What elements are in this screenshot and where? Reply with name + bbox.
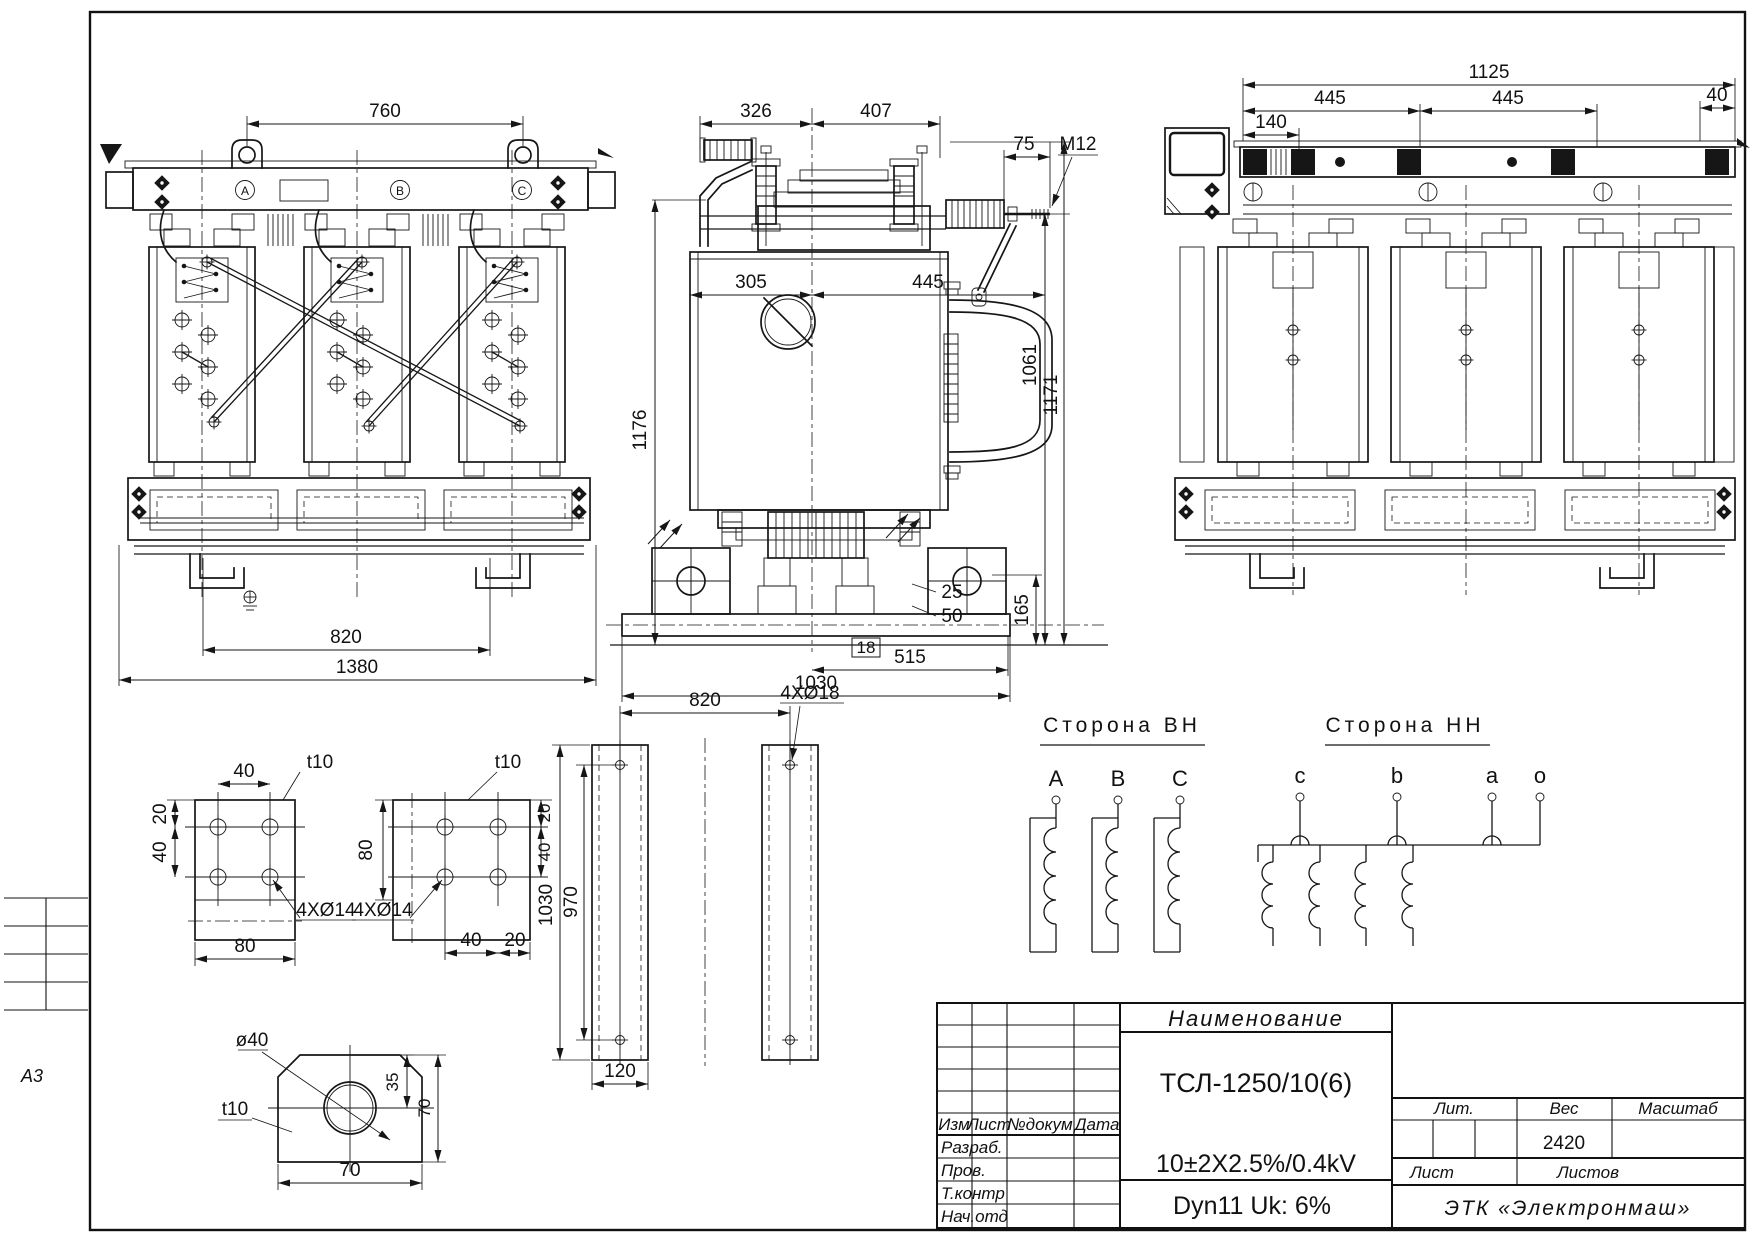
row-developed: Разраб.: [941, 1138, 1003, 1157]
hv-terminal-a: A: [1049, 766, 1064, 791]
col-izm: Изм: [938, 1115, 970, 1134]
dim-pa-40-label: 40: [233, 761, 254, 782]
hv-title: Сторона ВН: [1043, 714, 1201, 737]
phase-b-mark: B: [396, 184, 404, 198]
dim-40-label: 40: [1706, 85, 1727, 106]
thickness-pa-label: t10: [307, 752, 333, 773]
phase-a-mark: A: [241, 184, 249, 198]
row-department: Нач.отд: [941, 1207, 1008, 1226]
no-lifting-icon: [761, 295, 815, 349]
dim-1380-label: 1380: [336, 657, 378, 678]
dim-50-label: 50: [941, 606, 962, 627]
dim-445a-label: 445: [1314, 88, 1346, 109]
drawing-sheet: А3 760 A B C: [0, 0, 1755, 1241]
row-checked: Пров.: [941, 1161, 986, 1180]
dim-pb-20-label: 20: [535, 804, 554, 823]
dim-75-label: 75: [1013, 134, 1034, 155]
front-view: 760 A B C 820: [100, 101, 615, 686]
voltage-rating: 10±2X2.5%/0.4kV: [1156, 1150, 1356, 1178]
busbar-rods: [200, 255, 528, 434]
dim-bars-820-label: 820: [689, 690, 721, 711]
lv-terminal-box: [1165, 128, 1229, 220]
lower-clamp-assembly: [718, 510, 930, 614]
scale-label: Масштаб: [1638, 1099, 1719, 1118]
col-date: Дата: [1073, 1115, 1120, 1134]
position-flag-icon: [100, 144, 122, 164]
dim-305-label: 305: [735, 272, 767, 293]
vector-group: Dyn11 Uk: 6%: [1173, 1192, 1331, 1220]
side-view: 326 407 75 M12: [606, 101, 1108, 702]
dim-bars-970-label: 970: [561, 886, 582, 918]
hv-terminal-b: B: [1111, 766, 1126, 791]
lv-terminal-b: b: [1391, 763, 1403, 788]
row-tcontrol: Т.контр: [941, 1184, 1005, 1203]
dim-rear-top: 1125 445 445 140 40: [1243, 62, 1735, 149]
dim-445b-label: 445: [1492, 88, 1524, 109]
dim-445-label: 445: [912, 272, 944, 293]
dim-gusset-70r-label: 70: [415, 1099, 434, 1118]
holes-pa-label: 4XØ14: [296, 900, 356, 921]
dim-25-label: 25: [941, 582, 962, 603]
dim-760-label: 760: [369, 101, 401, 122]
lv-winding-diagram: Сторона НН c b a o: [1258, 714, 1546, 946]
dim-pb-80-label: 80: [356, 839, 377, 860]
direction-arrow-icon: [598, 148, 614, 158]
col-doc: №докум: [1007, 1115, 1073, 1134]
lv-terminal-c: c: [1295, 763, 1306, 788]
company-name: ЭТК «Электронмаш»: [1445, 1197, 1692, 1220]
col-list: Лист: [966, 1115, 1011, 1134]
detail-plate-a: 40 t10 20 40 4XØ14 80: [150, 752, 356, 966]
sheet-label: Лист: [1409, 1163, 1454, 1182]
thickness-gusset-label: t10: [222, 1099, 248, 1120]
lv-title: Сторона НН: [1325, 714, 1484, 737]
dim-gusset-hole-label: ø40: [236, 1030, 269, 1051]
grounding-bolt-icon: [243, 591, 257, 610]
dim-front-lug-spacing: 760: [247, 101, 523, 146]
dim-gusset-35-label: 35: [383, 1073, 402, 1092]
dim-pb-40b-label: 40: [460, 930, 481, 951]
phase-c-mark: C: [518, 184, 527, 198]
model-designation: ТСЛ-1250/10(6): [1160, 1068, 1352, 1098]
nameplate: [280, 180, 328, 201]
sheet-format-label: А3: [20, 1066, 43, 1086]
dim-pa-20-label: 20: [150, 803, 171, 824]
thread-m12-label: M12: [1060, 134, 1097, 155]
dim-pa-40b-label: 40: [150, 841, 171, 862]
dim-407-label: 407: [860, 101, 892, 122]
dim-1171-label: 1171: [1041, 375, 1062, 416]
dim-18-label: 18: [857, 638, 876, 657]
dim-140-label: 140: [1255, 112, 1287, 133]
dim-gusset-70b-label: 70: [339, 1160, 360, 1181]
name-header: Наименование: [1168, 1006, 1344, 1031]
dim-820-label: 820: [330, 627, 362, 648]
weight-value: 2420: [1543, 1133, 1585, 1154]
dim-326-label: 326: [740, 101, 772, 122]
holes-pb-label: 4XØ14: [353, 900, 413, 921]
dim-bars-1030-label: 1030: [536, 884, 557, 926]
dim-side-326-407: 326 407: [700, 101, 940, 158]
dim-pa-80-label: 80: [234, 936, 255, 957]
detail-bars: 820 4XØ18 1030 970 120: [536, 683, 844, 1090]
lv-terminal-o: o: [1534, 763, 1546, 788]
hv-winding-diagram: Сторона ВН A B C: [1030, 714, 1205, 952]
lv-terminal-a: a: [1486, 763, 1499, 788]
thickness-pb-label: t10: [495, 752, 521, 773]
dim-bars-120-label: 120: [604, 1061, 636, 1082]
sheets-label: Листов: [1556, 1163, 1619, 1182]
drawing-canvas: А3 760 A B C: [0, 0, 1755, 1241]
hv-terminal-c: C: [1172, 766, 1188, 791]
detail-plate-b: t10 80 20 40 4XØ14 40 20: [352, 752, 554, 960]
dim-1176-label: 1176: [630, 410, 651, 451]
weight-label: Вес: [1549, 1099, 1579, 1118]
rear-view: 1125 445 445 140 40: [1165, 62, 1750, 595]
holes-bars-label: 4XØ18: [780, 683, 839, 704]
dim-1125-label: 1125: [1469, 62, 1510, 83]
dim-front-hole-spacing: 820: [203, 558, 490, 656]
lit-label: Лит.: [1433, 1099, 1474, 1118]
dim-515-label: 515: [894, 647, 926, 668]
dim-pb-40-label: 40: [535, 843, 554, 862]
detail-gusset: ø40 t10 35 70 70: [218, 1030, 446, 1190]
dim-side-75-m12: 75 M12: [1004, 134, 1098, 208]
dim-165-label: 165: [1012, 594, 1033, 626]
dim-pb-20b-label: 20: [504, 930, 525, 951]
title-block: Наименование ТСЛ-1250/10(6) 10±2X2.5%/0.…: [937, 1003, 1745, 1228]
dim-1061-label: 1061: [1020, 344, 1041, 386]
